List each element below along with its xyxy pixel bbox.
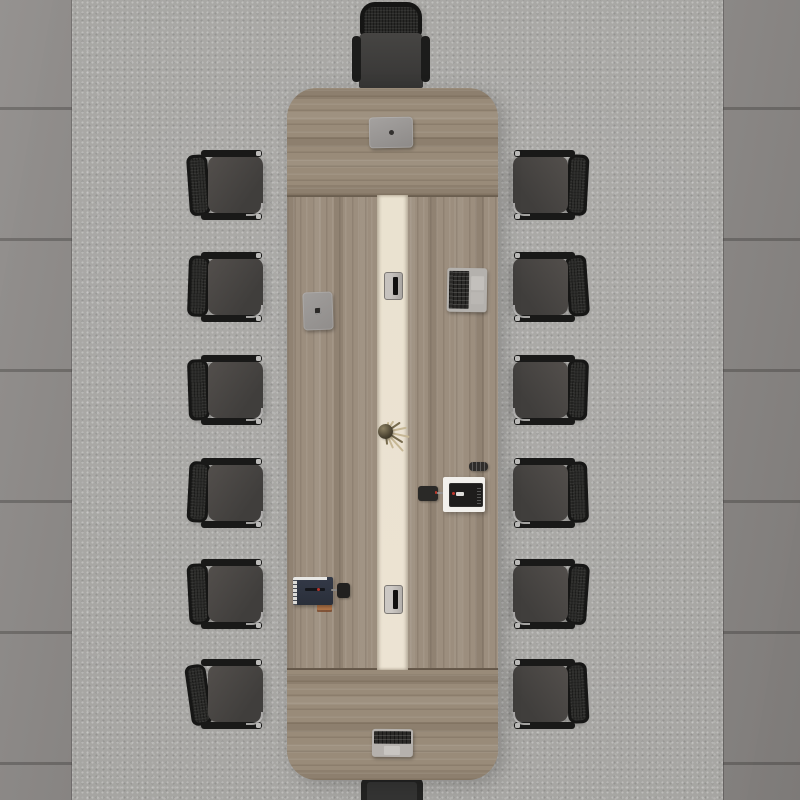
chair-armrest [514,559,575,566]
table-end-panel-bottom [287,668,498,780]
office-chair-right-6 [512,659,588,729]
office-chair-right-4 [512,458,588,528]
laptop-keyboard [374,731,411,744]
chair-mesh-back [186,563,210,625]
office-chair-head-bottom [361,778,423,800]
wall-panel-right [723,0,800,800]
chair-armrest [201,150,262,157]
coffee-cup [469,462,488,471]
chair-armrest [514,355,575,362]
tablet-logo-icon [315,308,321,314]
chair-mesh-back [187,359,210,421]
chair-armrest [201,659,262,666]
chair-armrest [201,559,262,566]
cable-grommet-top [384,272,403,300]
gray-tablet [302,291,333,330]
chair-seat [359,33,423,88]
chair-mesh-back [566,461,589,523]
chair-armrest [514,659,575,666]
office-chair-right-5 [512,559,588,629]
chair-mesh-back [186,461,210,523]
power-adapter [418,486,438,501]
chair-armrest [514,458,575,465]
office-chair-right-2 [512,252,588,322]
chair-mesh-back [566,359,589,421]
chair-mesh-back [565,154,589,216]
chair-mesh-back [565,662,589,724]
dried-plant [378,424,393,439]
chair-mesh-back [565,563,590,625]
chair-armrest [201,252,262,259]
open-laptop-side [447,268,488,313]
office-chair-left-3 [188,355,264,425]
office-chair-right-1 [512,150,588,220]
office-chair-head-top [352,2,430,88]
chair-armrest [201,458,262,465]
navy-notebook [293,577,333,605]
tablet-on-notepad [449,483,483,507]
laptop-keyboard [449,271,470,309]
office-chair-left-2 [188,252,264,322]
office-chair-left-1 [188,150,264,220]
cable-grommet-bottom [384,585,403,614]
chair-armrest [514,252,575,259]
open-laptop-bottom [372,729,413,757]
chair-armrest [352,36,361,82]
power-led [452,492,455,495]
speaker-grille [477,486,481,504]
grommet-slot [393,590,398,609]
conference-room-scene [0,0,800,800]
office-chair-left-4 [188,458,264,528]
plant-vase [378,424,393,439]
chair-armrest [514,150,575,157]
office-chair-left-5 [188,559,264,629]
grommet-slot [393,277,398,295]
closed-laptop [369,117,414,149]
office-chair-right-3 [512,355,588,425]
laptop-trackpad [471,276,484,290]
chair-mesh-back [187,255,210,317]
pen [305,588,325,591]
chair-armrest [201,355,262,362]
black-pouch [337,583,350,598]
chair-mesh-back [565,255,590,317]
laptop-logo-icon [388,130,393,135]
chair-armrest [421,36,430,82]
stylus [456,492,464,496]
wall-panel-left [0,0,72,800]
laptop-trackpad [384,746,400,755]
laptop-palmrest [471,292,484,304]
office-chair-left-6 [188,659,264,729]
